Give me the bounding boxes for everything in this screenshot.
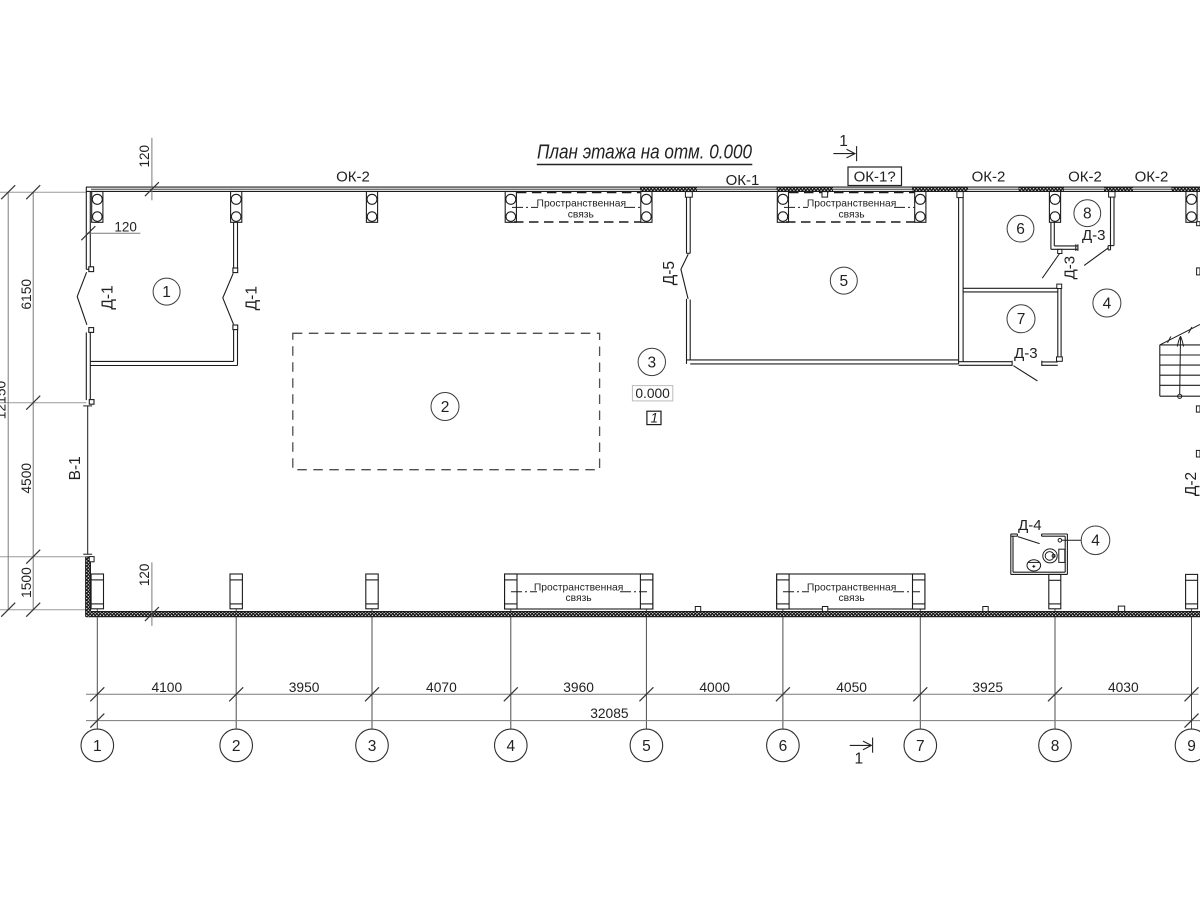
svg-text:План этажа на отм. 0.000: План этажа на отм. 0.000 bbox=[537, 142, 752, 164]
svg-text:9: 9 bbox=[1187, 738, 1196, 755]
svg-text:3925: 3925 bbox=[972, 680, 1003, 695]
svg-text:Пространственная: Пространственная bbox=[807, 582, 896, 593]
svg-text:8: 8 bbox=[1083, 206, 1092, 223]
svg-text:4100: 4100 bbox=[151, 680, 182, 695]
svg-text:2: 2 bbox=[232, 738, 241, 755]
svg-text:7: 7 bbox=[1017, 311, 1026, 328]
svg-text:связь: связь bbox=[566, 593, 592, 604]
svg-text:4: 4 bbox=[1103, 295, 1112, 312]
svg-text:Д-3: Д-3 bbox=[1062, 256, 1079, 280]
svg-text:Д-3: Д-3 bbox=[1014, 345, 1038, 362]
svg-text:0.000: 0.000 bbox=[635, 386, 670, 401]
svg-text:Д-1: Д-1 bbox=[244, 286, 261, 310]
svg-text:1500: 1500 bbox=[19, 567, 34, 598]
svg-text:1: 1 bbox=[854, 751, 863, 768]
svg-text:3: 3 bbox=[647, 354, 656, 371]
svg-text:120: 120 bbox=[137, 564, 152, 587]
svg-text:1: 1 bbox=[93, 738, 102, 755]
svg-text:Пространственная: Пространственная bbox=[537, 199, 626, 210]
svg-text:6150: 6150 bbox=[19, 279, 34, 310]
svg-text:ОК-1: ОК-1 bbox=[726, 172, 760, 189]
svg-text:ОК-2: ОК-2 bbox=[1068, 168, 1102, 185]
svg-text:1: 1 bbox=[650, 410, 658, 425]
svg-text:4500: 4500 bbox=[19, 463, 34, 494]
svg-text:120: 120 bbox=[137, 145, 152, 168]
svg-text:связь: связь bbox=[568, 210, 594, 221]
svg-text:ОК-2: ОК-2 bbox=[336, 168, 370, 185]
svg-text:2: 2 bbox=[441, 399, 450, 416]
svg-text:3: 3 bbox=[368, 738, 377, 755]
svg-text:Пространственная: Пространственная bbox=[534, 582, 623, 593]
svg-text:Д-5: Д-5 bbox=[661, 261, 678, 285]
svg-text:1: 1 bbox=[839, 133, 848, 150]
svg-text:3960: 3960 bbox=[563, 680, 594, 695]
svg-text:Д-2: Д-2 bbox=[1183, 472, 1200, 496]
svg-text:3950: 3950 bbox=[289, 680, 320, 695]
svg-text:4050: 4050 bbox=[836, 680, 867, 695]
svg-text:Пространственная: Пространственная bbox=[807, 199, 896, 210]
svg-text:Д-1: Д-1 bbox=[100, 285, 117, 309]
svg-text:6: 6 bbox=[779, 738, 788, 755]
svg-text:ОК-2: ОК-2 bbox=[972, 168, 1006, 185]
svg-text:ОК-1?: ОК-1? bbox=[854, 168, 896, 185]
svg-text:4: 4 bbox=[506, 738, 515, 755]
svg-text:4030: 4030 bbox=[1108, 680, 1139, 695]
svg-text:4: 4 bbox=[1091, 533, 1100, 550]
svg-text:ОК-2: ОК-2 bbox=[1135, 168, 1169, 185]
svg-text:1: 1 bbox=[162, 284, 171, 301]
svg-text:связь: связь bbox=[839, 593, 865, 604]
svg-text:6: 6 bbox=[1016, 221, 1025, 238]
svg-text:Д-4: Д-4 bbox=[1018, 517, 1042, 534]
svg-text:32085: 32085 bbox=[590, 706, 629, 721]
svg-text:связь: связь bbox=[839, 210, 865, 221]
svg-text:5: 5 bbox=[839, 273, 848, 290]
svg-text:Д-3: Д-3 bbox=[1082, 227, 1106, 244]
svg-text:7: 7 bbox=[916, 738, 925, 755]
svg-text:12150: 12150 bbox=[0, 380, 9, 419]
svg-text:4000: 4000 bbox=[699, 680, 730, 695]
svg-text:120: 120 bbox=[114, 219, 137, 234]
svg-text:8: 8 bbox=[1051, 738, 1060, 755]
svg-text:4070: 4070 bbox=[426, 680, 457, 695]
svg-text:В-1: В-1 bbox=[67, 456, 84, 480]
svg-text:5: 5 bbox=[642, 738, 651, 755]
